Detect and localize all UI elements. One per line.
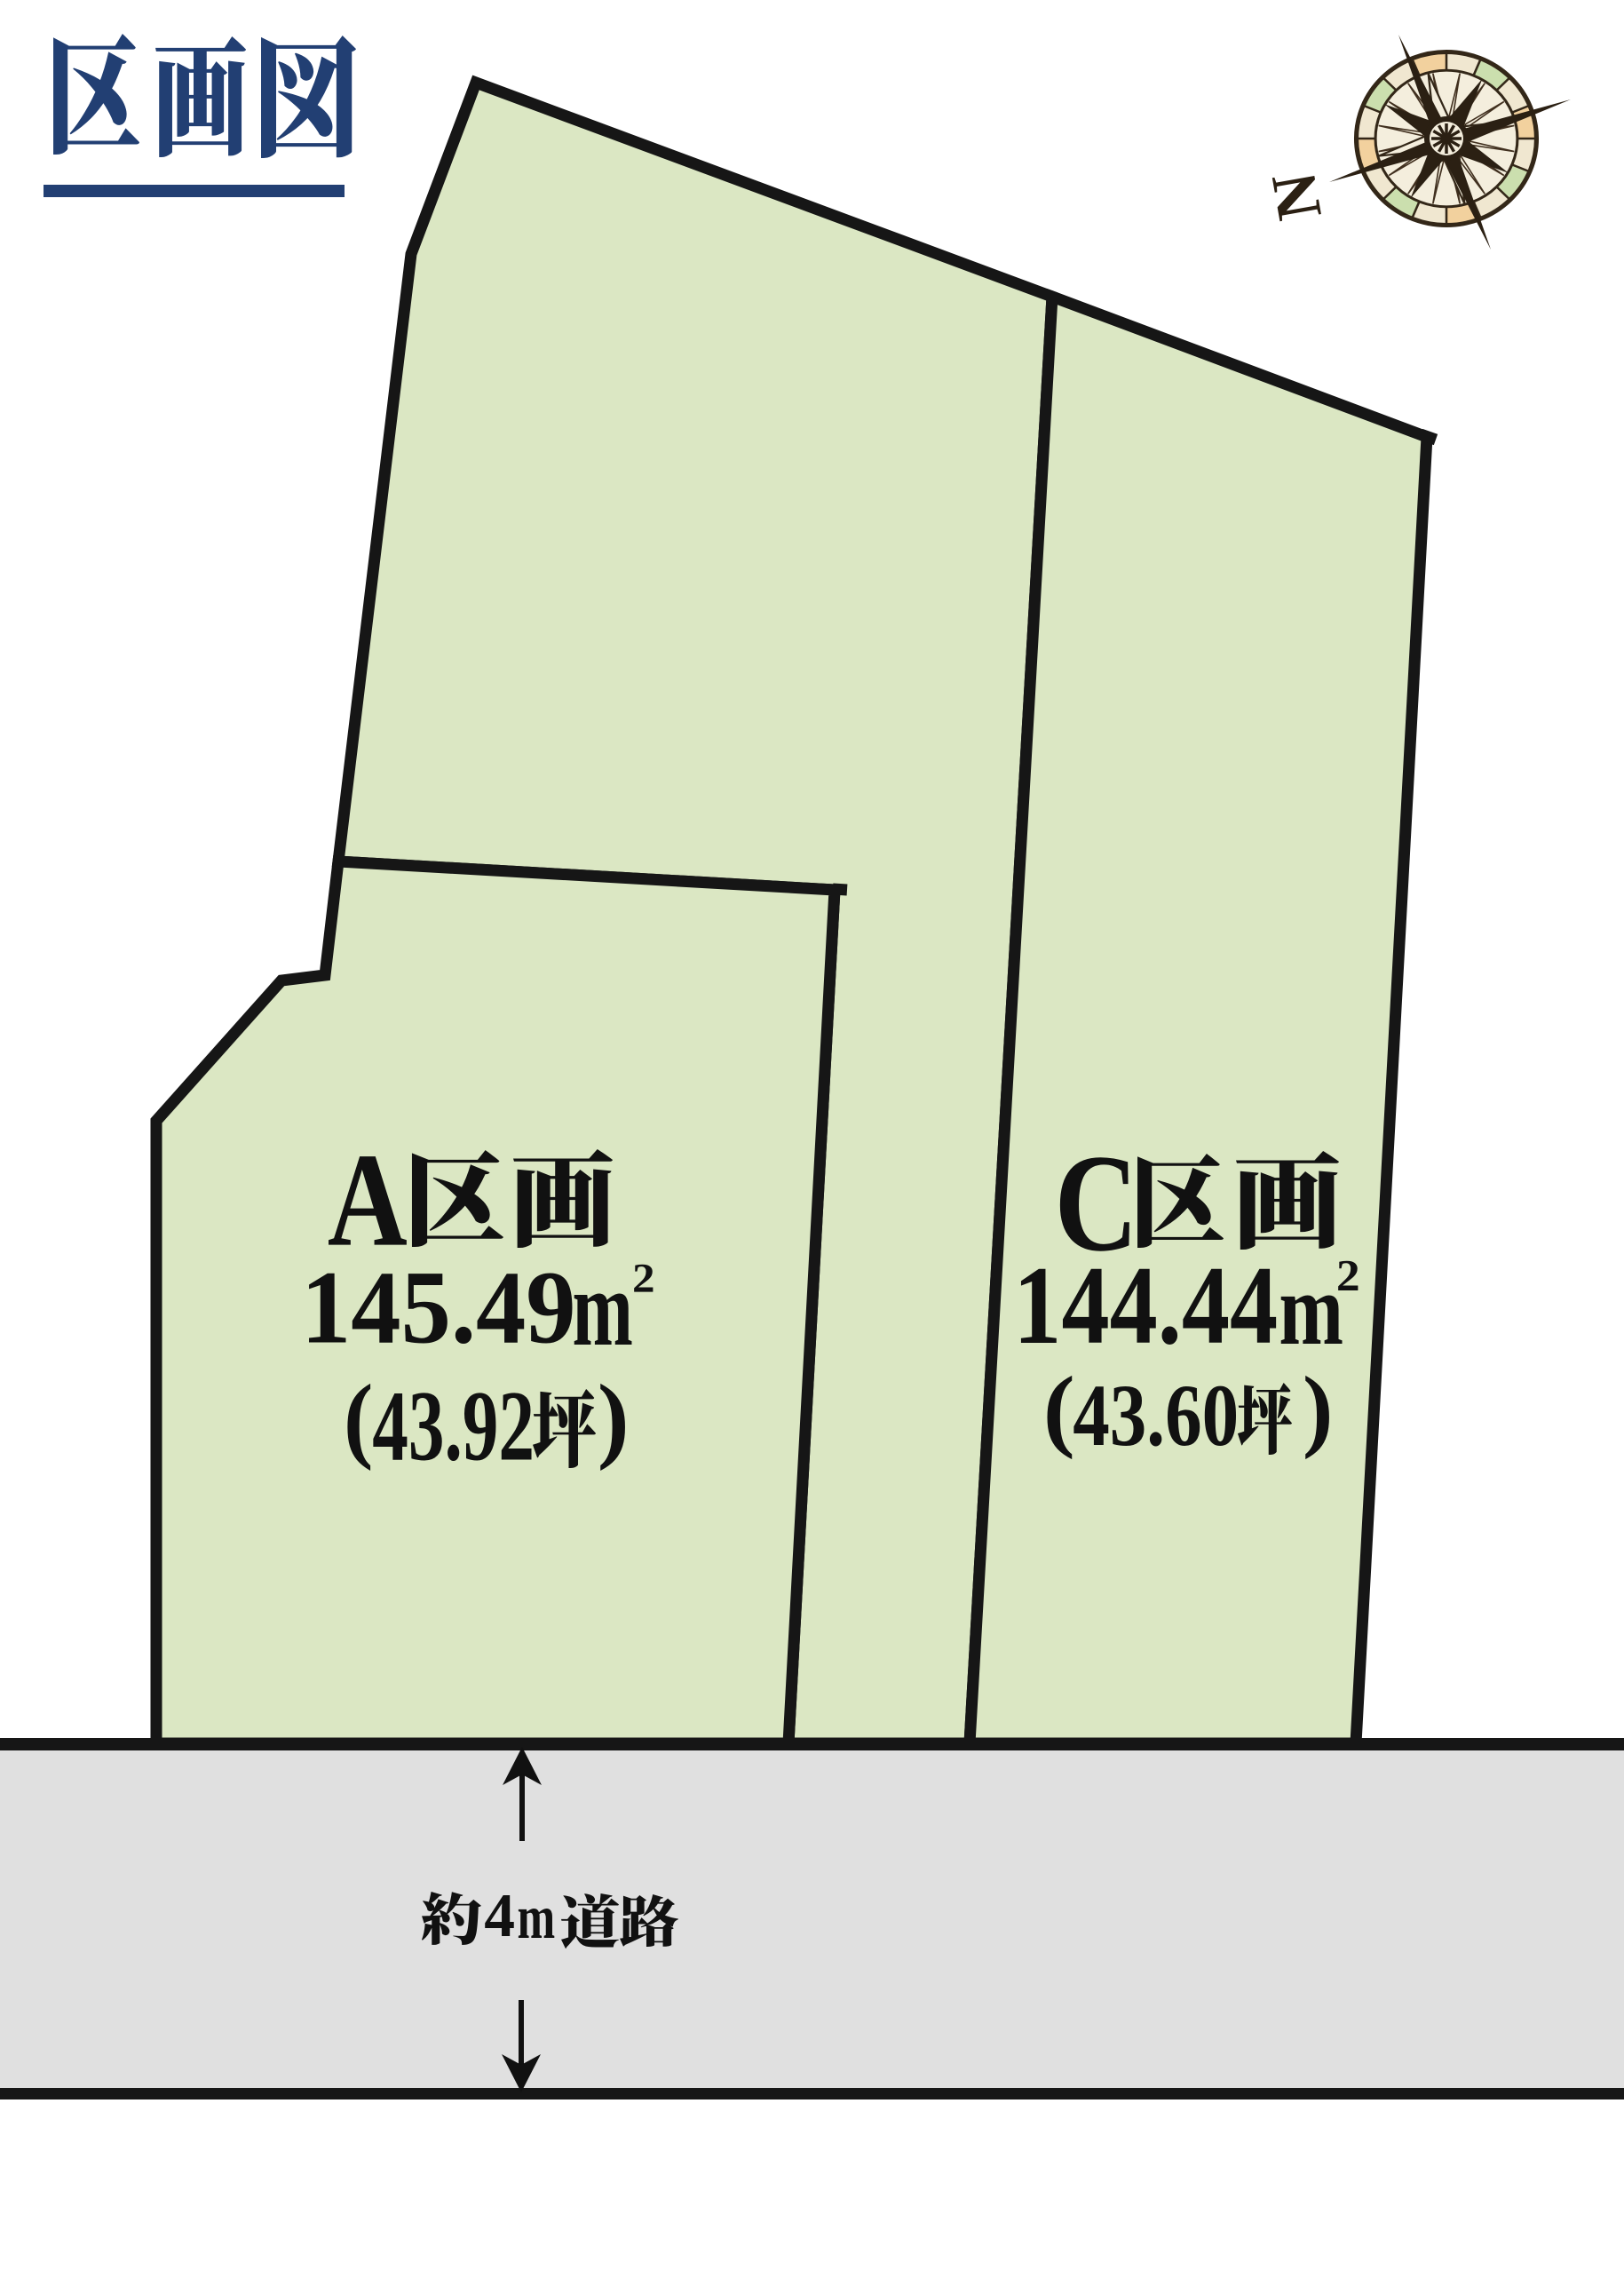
svg-text:145.49: 145.49 bbox=[301, 1249, 576, 1365]
svg-text:m: m bbox=[518, 1885, 556, 1952]
svg-text:144.44: 144.44 bbox=[1013, 1243, 1278, 1367]
svg-text:(: ( bbox=[344, 1366, 373, 1472]
svg-text:(: ( bbox=[1043, 1358, 1075, 1459]
svg-text:): ) bbox=[1303, 1359, 1334, 1460]
svg-text:m: m bbox=[1279, 1254, 1343, 1367]
svg-text:43.60: 43.60 bbox=[1073, 1366, 1239, 1464]
svg-text:43.92: 43.92 bbox=[372, 1371, 535, 1482]
svg-text:2: 2 bbox=[632, 1256, 655, 1301]
svg-text:4: 4 bbox=[484, 1882, 515, 1950]
svg-text:2: 2 bbox=[1336, 1251, 1360, 1299]
svg-text:m: m bbox=[573, 1250, 633, 1369]
svg-text:): ) bbox=[598, 1366, 630, 1472]
